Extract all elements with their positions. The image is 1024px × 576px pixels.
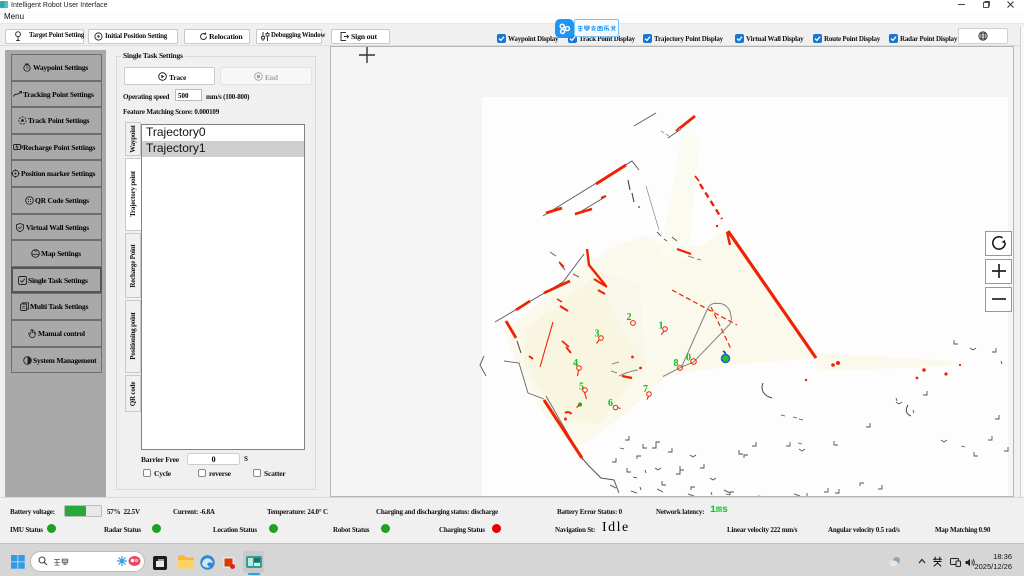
svg-text:6: 6 <box>608 398 613 409</box>
